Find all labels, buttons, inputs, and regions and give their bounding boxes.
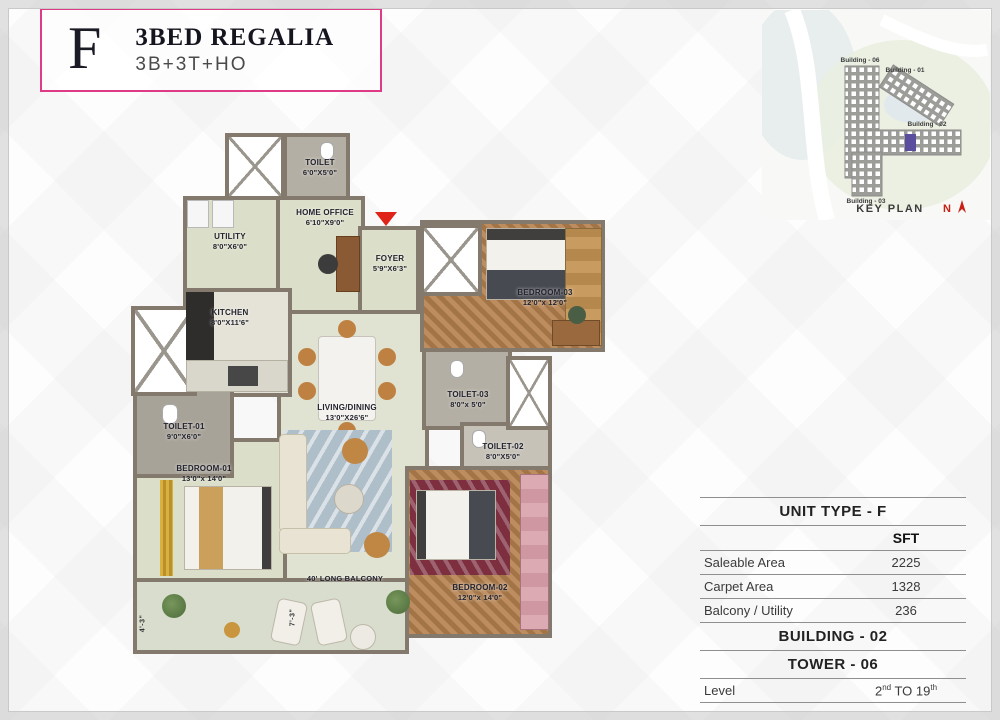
tower-row: TOWER - 06 [700,651,966,678]
entry-arrow-icon [375,212,397,226]
keyplan-title: KEY PLAN [856,203,923,215]
dining-chair-icon [298,382,316,400]
room-label-toilet-03: TOILET-03 8'0"x 5'0" [447,390,488,410]
coffee-table-icon [334,484,364,514]
room-label-bedroom-03: BEDROOM-03 12'0"x 12'0" [517,288,572,308]
room-name: TOILET-03 [447,390,488,400]
balcony-label: 40' LONG BALCONY [307,574,383,584]
room-dim: 6'10"X9'0" [296,218,354,228]
level-row: Level 2nd TO 19th [700,679,966,702]
row-label: Carpet Area [700,579,846,594]
room-dim: 12'0"x 14'0" [452,593,507,603]
room-label-living-dining: LIVING/DINING 13'0"X26'6" [317,403,377,423]
room-dim: 5'9"X6'3" [373,264,407,274]
lift-shaft-icon [420,224,482,296]
room-label-toilet-01: TOILET-01 9'0"X6'0" [163,422,204,442]
unit-details-table: UNIT TYPE - F SFT Saleable Area 2225 Car… [700,497,966,703]
room-label-toilet: TOILET 6'0"X5'0" [303,158,337,178]
room-name: TOILET-02 [482,442,523,452]
room-name: TOILET [303,158,337,168]
brochure-page: F 3BED REGALIA 3B+3T+HO [0,0,1000,720]
row-label: Balcony / Utility [700,603,846,618]
level-value: 2nd TO 19th [846,683,966,698]
table-row: Saleable Area 2225 [700,551,966,574]
curtain-icon [160,480,173,576]
room-dim: 13'0"X26'6" [317,413,377,423]
room-name: BEDROOM-03 [517,288,572,298]
table-divider [700,702,966,703]
dining-chair-icon [298,348,316,366]
room-label-utility: UTILITY 8'0"X6'0" [213,232,247,252]
room-dim: 6'0"X5'0" [303,168,337,178]
cooktop-icon [228,366,258,386]
room-name: FOYER [373,254,407,264]
room-name: HOME OFFICE [296,208,354,218]
unit-title: 3BED REGALIA [135,24,334,52]
dining-chair-icon [338,320,356,338]
room-label-kitchen: KITCHEN 8'0"X11'6" [211,308,249,328]
key-plan: Building - 06 Building - 01 Building - 0… [762,10,990,220]
room-name: BEDROOM-02 [452,583,507,593]
wc-icon [450,360,464,378]
bed-icon [184,486,272,570]
armchair-icon [342,438,368,464]
unit-subtitle: 3B+3T+HO [135,54,334,76]
room-dim: 8'0"X5'0" [482,452,523,462]
room-label-toilet-02: TOILET-02 8'0"X5'0" [482,442,523,462]
wardrobe-icon [520,474,549,630]
keyplan-label-building-01: Building - 01 [886,67,925,74]
bed-icon [416,490,496,560]
keyplan-building-03 [852,152,882,196]
pot-icon [224,622,240,638]
patio-table-icon [350,624,376,650]
room-label-home-office: HOME OFFICE 6'10"X9'0" [296,208,354,228]
room-label-foyer: FOYER 5'9"X6'3" [373,254,407,274]
room-name: KITCHEN [211,308,249,318]
office-desk-icon [336,236,360,292]
row-value: 1328 [846,579,966,594]
sofa-icon [279,528,351,554]
lift-shaft-icon [225,133,285,200]
room-name: BEDROOM-01 [176,464,231,474]
unit-letter: F [68,18,101,78]
dining-chair-icon [378,382,396,400]
keyplan-unit-highlight [905,134,916,151]
dimension-label: 4'-3" [139,615,146,633]
table-row: Balcony / Utility 236 [700,599,966,622]
unit-header: F 3BED REGALIA 3B+3T+HO [40,8,382,92]
office-chair-icon [318,254,338,274]
building-row: BUILDING - 02 [700,623,966,650]
north-label: N [943,203,951,215]
room-name: UTILITY [213,232,247,242]
table-row: Carpet Area 1328 [700,575,966,598]
room-label-bedroom-01: BEDROOM-01 13'0"x 14'0" [176,464,231,484]
lift-shaft-icon [506,356,552,430]
plant-icon [386,590,410,614]
washer-icon [187,200,209,228]
room-name: LIVING/DINING [317,403,377,413]
row-value: 236 [846,603,966,618]
room-dim: 8'0"x 5'0" [447,400,488,410]
plant-icon [162,594,186,618]
room-label-bedroom-02: BEDROOM-02 12'0"x 14'0" [452,583,507,603]
room-dim: 12'0"x 12'0" [517,298,572,308]
table-unit-header: SFT [846,530,966,546]
room-dim: 13'0"x 14'0" [176,474,231,484]
armchair-icon [364,532,390,558]
keyplan-label-building-06: Building - 06 [841,57,880,64]
dining-chair-icon [378,348,396,366]
sofa-icon [279,434,307,532]
floor-plan: TOILET 6'0"X5'0" HOME OFFICE 6'10"X9'0" … [128,108,633,673]
room-dim: 8'0"X11'6" [211,318,249,328]
row-value: 2225 [846,555,966,570]
keyplan-label-building-02: Building - 02 [908,121,947,128]
washer-icon [212,200,234,228]
dimension-label: 7'-3" [289,609,296,627]
table-header-row: SFT [700,526,966,550]
room-name: TOILET-01 [163,422,204,432]
kitchen-counter-icon [186,292,214,362]
table-title: UNIT TYPE - F [700,498,966,525]
chair-icon [568,306,586,324]
room-dim: 8'0"X6'0" [213,242,247,252]
room-dim: 9'0"X6'0" [163,432,204,442]
level-label: Level [700,683,846,698]
key-plan-map: Building - 06 Building - 01 Building - 0… [762,10,990,220]
row-label: Saleable Area [700,555,846,570]
